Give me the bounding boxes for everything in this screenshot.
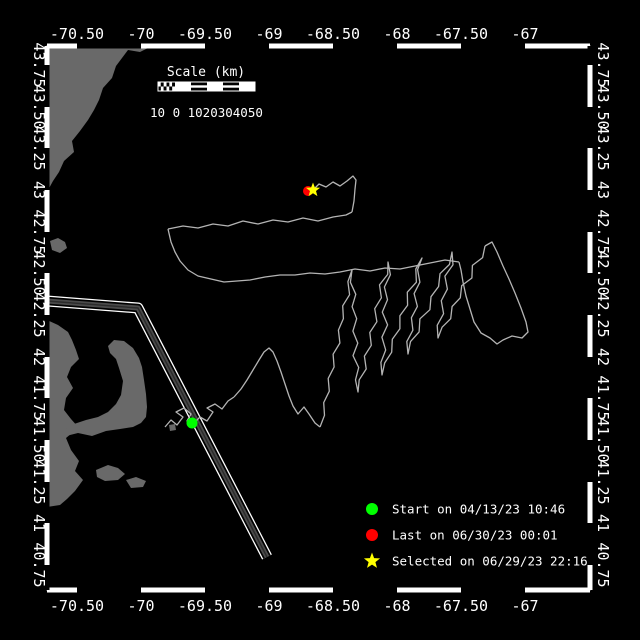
- longitude-label-bottom: -69: [255, 597, 282, 615]
- zebra-segment-right: [588, 440, 593, 482]
- zebra-segment-bottom: [269, 588, 333, 593]
- scale-bar-checker-cell: [164, 82, 167, 87]
- longitude-label-top: -69.50: [178, 25, 232, 43]
- latitude-label-right: 43: [594, 181, 612, 199]
- zebra-segment-top: [205, 44, 269, 49]
- latitude-label-left: 42.25: [30, 292, 48, 337]
- longitude-label-top: -70.50: [50, 25, 104, 43]
- latitude-label-left: 41.50: [30, 417, 48, 462]
- legend-marker-0-circle-icon: [366, 503, 378, 515]
- zebra-segment-right: [588, 315, 593, 357]
- latitude-label-right: 42: [594, 348, 612, 366]
- scale-bar-checker-cell: [169, 87, 172, 92]
- zebra-segment-bottom: [141, 588, 205, 593]
- zebra-segment-top: [397, 44, 461, 49]
- zebra-segment-bottom: [205, 588, 269, 593]
- legend-item-label: Selected on 06/29/23 22:16: [392, 554, 588, 569]
- scale-bar-checker-cell: [161, 82, 164, 87]
- map-canvas: -70.50-70.50-70-70-69.50-69.50-69-69-68.…: [0, 0, 640, 640]
- zebra-segment-bottom: [47, 588, 77, 593]
- scale-bar-segment-stripe: [191, 85, 207, 87]
- zebra-segment-right: [588, 273, 593, 315]
- latitude-label-right: 43.75: [594, 42, 612, 87]
- latitude-label-left: 41.25: [30, 459, 48, 504]
- zebra-segment-right: [588, 398, 593, 440]
- latitude-label-left: 40.75: [30, 542, 48, 587]
- longitude-label-top: -68: [383, 25, 410, 43]
- latitude-label-right: 41.75: [594, 375, 612, 420]
- zebra-segment-top: [525, 44, 590, 49]
- zebra-segment-bottom: [77, 588, 141, 593]
- longitude-label-top: -68.50: [306, 25, 360, 43]
- latitude-label-left: 41.75: [30, 375, 48, 420]
- latitude-label-left: 43: [30, 181, 48, 199]
- latitude-label-right: 41.50: [594, 417, 612, 462]
- zebra-segment-bottom: [525, 588, 590, 593]
- latitude-label-right: 42.75: [594, 209, 612, 254]
- zebra-segment-right: [588, 565, 593, 590]
- zebra-segment-bottom: [461, 588, 525, 593]
- scale-bar-checker-cell: [172, 87, 175, 92]
- latitude-label-right: 40.75: [594, 542, 612, 587]
- scale-bar-checker-cell: [172, 82, 175, 87]
- legend-item-label: Last on 06/30/23 00:01: [392, 528, 558, 543]
- zebra-segment-right: [588, 107, 593, 148]
- zebra-segment-top: [47, 44, 77, 49]
- legend: Start on 04/13/23 10:46Last on 06/30/23 …: [364, 502, 588, 569]
- latitude-label-left: 42.75: [30, 209, 48, 254]
- longitude-label-top: -69: [255, 25, 282, 43]
- legend-item-label: Start on 04/13/23 10:46: [392, 502, 565, 517]
- longitude-label-bottom: -69.50: [178, 597, 232, 615]
- latitude-label-left: 42.50: [30, 250, 48, 295]
- scale-bar-segment: [207, 82, 223, 91]
- longitude-label-bottom: -67: [511, 597, 538, 615]
- longitude-label-bottom: -68.50: [306, 597, 360, 615]
- latitude-label-right: 41: [594, 514, 612, 532]
- zebra-segment-right: [588, 482, 593, 523]
- latitude-label-left: 43.50: [30, 84, 48, 129]
- zebra-segment-right: [588, 65, 593, 107]
- scale-bar-checker-cell: [164, 87, 167, 92]
- map-plot-window: -70.50-70.50-70-70-69.50-69.50-69-69-68.…: [0, 0, 640, 640]
- zebra-segment-right: [588, 357, 593, 398]
- scale-bar-segment: [239, 82, 255, 91]
- scale-bar-checker-cell: [167, 82, 170, 87]
- latitude-label-left: 43.25: [30, 125, 48, 170]
- scale-bar-segment-stripe: [223, 85, 239, 87]
- latitude-label-right: 42.50: [594, 250, 612, 295]
- zebra-segment-top: [269, 44, 333, 49]
- longitude-label-bottom: -68: [383, 597, 410, 615]
- zebra-segment-right: [588, 46, 593, 65]
- land-polygon: [169, 424, 176, 431]
- scale-bar-checker-cell: [161, 87, 164, 92]
- latitude-label-left: 42: [30, 348, 48, 366]
- longitude-label-bottom: -67.50: [434, 597, 488, 615]
- zebra-segment-top: [333, 44, 397, 49]
- zebra-segment-top: [77, 44, 141, 49]
- zebra-segment-bottom: [333, 588, 397, 593]
- longitude-label-bottom: -70: [127, 597, 154, 615]
- legend-marker-1-circle-icon: [366, 529, 378, 541]
- zebra-segment-bottom: [397, 588, 461, 593]
- longitude-label-top: -67: [511, 25, 538, 43]
- zebra-segment-right: [588, 232, 593, 273]
- zebra-segment-top: [141, 44, 205, 49]
- zebra-segment-right: [588, 148, 593, 190]
- zebra-segment-top: [461, 44, 525, 49]
- latitude-label-right: 41.25: [594, 459, 612, 504]
- scale-bar-numbers: 10 0 1020304050: [150, 105, 263, 120]
- scale-bar-checker-cell: [167, 87, 170, 92]
- latitude-label-right: 42.25: [594, 292, 612, 337]
- zebra-segment-right: [588, 523, 593, 565]
- zebra-segment-right: [588, 190, 593, 232]
- scale-bar-segment: [175, 82, 191, 91]
- latitude-label-right: 43.25: [594, 125, 612, 170]
- start-position-marker: [187, 418, 198, 429]
- latitude-label-left: 43.75: [30, 42, 48, 87]
- latitude-label-right: 43.50: [594, 84, 612, 129]
- scale-bar-title: Scale (km): [167, 65, 245, 80]
- scale-bar-checker-cell: [169, 82, 172, 87]
- longitude-label-top: -70: [127, 25, 154, 43]
- longitude-label-bottom: -70.50: [50, 597, 104, 615]
- longitude-label-top: -67.50: [434, 25, 488, 43]
- latitude-label-left: 41: [30, 514, 48, 532]
